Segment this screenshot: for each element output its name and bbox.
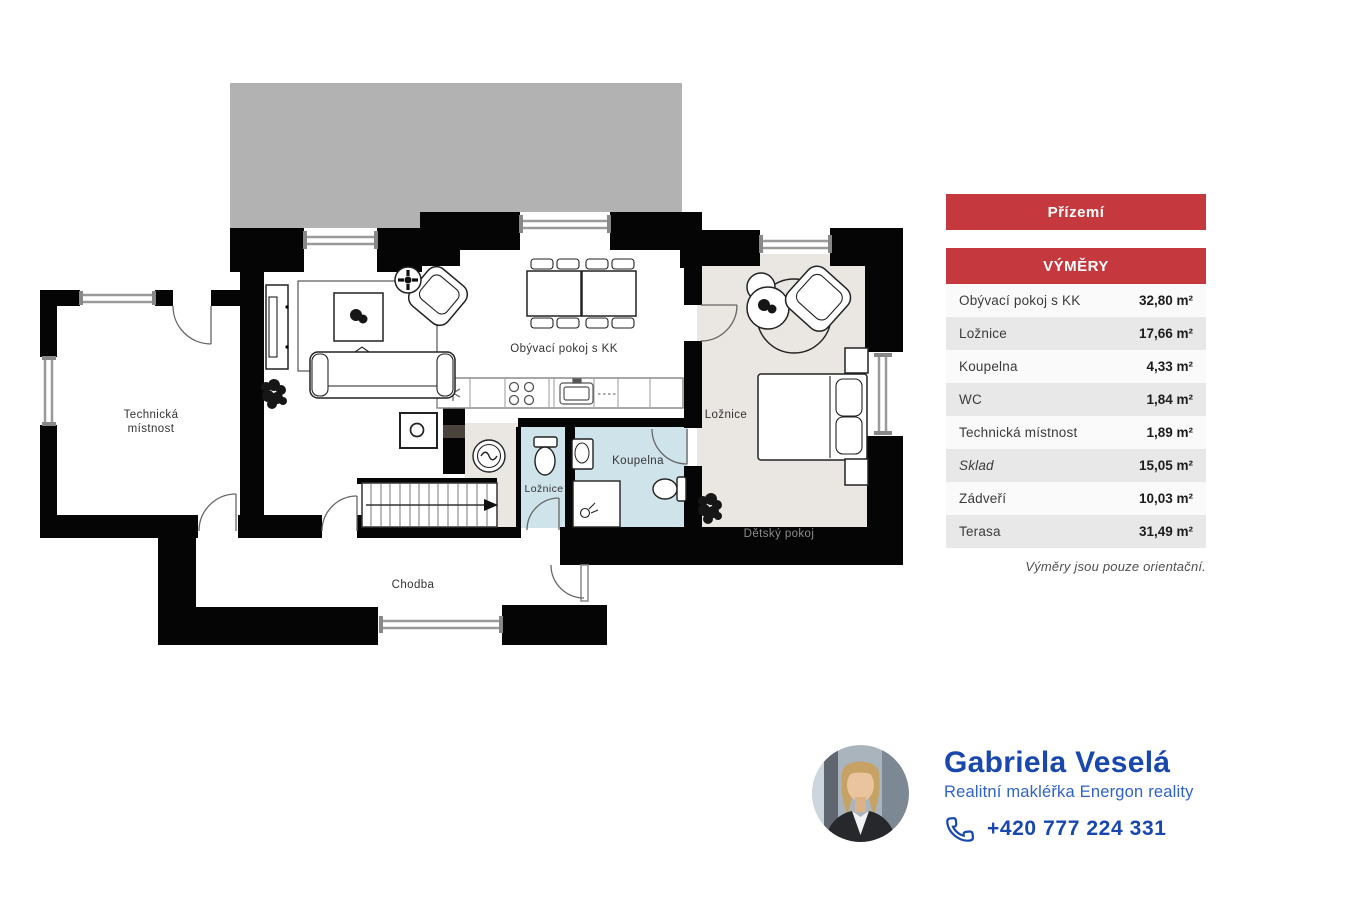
window-hallway-bottom (379, 614, 503, 638)
nightstand-bottom (845, 459, 868, 485)
room-label: Ložnice (959, 326, 1007, 341)
window-bedroom-top (759, 228, 832, 254)
window-technical-top (79, 290, 156, 306)
door-technical-top (173, 306, 211, 344)
area-row: Obývací pokoj s KK 32,80 m² (946, 284, 1206, 317)
agent-card: Gabriela Veselá Realitní makléřka Energo… (812, 745, 1194, 845)
room-area: 31,49 m² (1139, 524, 1193, 539)
bed (758, 374, 867, 460)
ceiling-fan-icon (395, 267, 421, 293)
window-living-right (519, 212, 611, 238)
bathroom-sink (572, 439, 593, 469)
room-label: Obývací pokoj s KK (959, 293, 1080, 308)
washing-machine (473, 440, 505, 472)
agent-info: Gabriela Veselá Realitní makléřka Energo… (944, 745, 1194, 845)
room-label: Terasa (959, 524, 1001, 539)
plant-living (261, 379, 287, 409)
nightstand-top (845, 348, 868, 373)
label-living: Obývací pokoj s KK (510, 343, 618, 355)
floor-title: Přízemí (1048, 204, 1105, 221)
room-area: 1,89 m² (1146, 425, 1193, 440)
sofa (310, 347, 455, 398)
room-label: Zádveří (959, 491, 1006, 506)
terrace-area (230, 83, 682, 228)
area-row: Koupelna 4,33 m² (946, 350, 1206, 383)
window-bedroom-right (867, 352, 903, 436)
shaft (443, 425, 465, 438)
window-technical-left (40, 356, 57, 426)
stairs (362, 483, 498, 527)
room-area: 17,66 m² (1139, 326, 1193, 341)
shower (573, 481, 620, 527)
agent-phone-row: +420 777 224 331 (944, 813, 1194, 845)
area-panel: Přízemí VÝMĚRY Obývací pokoj s KK 32,80 … (946, 194, 1206, 574)
label-bathroom: Koupelna (612, 455, 664, 467)
phone-icon (944, 813, 976, 845)
agent-photo (812, 745, 909, 842)
label-bedroom: Ložnice (705, 409, 747, 421)
toilet-wc (534, 437, 557, 475)
label-technical-1: Technická (124, 409, 179, 421)
room-label: Koupelna (959, 359, 1018, 374)
room-label: WC (959, 392, 982, 407)
area-row: Sklad 15,05 m² (946, 449, 1206, 482)
door-hallway-living (322, 496, 357, 531)
floor-title-header: Přízemí (946, 194, 1206, 230)
toilet-bathroom (653, 477, 686, 501)
area-row: WC 1,84 m² (946, 383, 1206, 416)
area-row: Ložnice 17,66 m² (946, 317, 1206, 350)
area-table: Obývací pokoj s KK 32,80 m² Ložnice 17,6… (946, 284, 1206, 548)
window-living-left (303, 228, 378, 254)
label-small-room: Ložnice (525, 483, 564, 495)
kitchen-sink (560, 379, 593, 404)
door-technical-bottom (199, 494, 236, 531)
area-row: Terasa 31,49 m² (946, 515, 1206, 548)
flyer-page: Obývací pokoj s KK Technická místnost Lo… (0, 0, 1352, 900)
label-kids-room: Dětský pokoj (744, 528, 815, 540)
agent-role: Realitní makléřka Energon reality (944, 783, 1194, 802)
table-title: VÝMĚRY (1043, 258, 1109, 275)
kitchen-counter (437, 378, 683, 408)
kitchen-island (400, 413, 437, 448)
room-area: 10,03 m² (1139, 491, 1193, 506)
area-row: Zádveří 10,03 m² (946, 482, 1206, 515)
agent-name: Gabriela Veselá (944, 747, 1194, 779)
area-row: Technická místnost 1,89 m² (946, 416, 1206, 449)
agent-avatar (812, 745, 909, 842)
entrance-door (551, 565, 588, 601)
tv-cabinet (266, 285, 289, 369)
room-label: Sklad (959, 458, 994, 473)
room-area: 1,84 m² (1146, 392, 1193, 407)
dining-set (527, 259, 636, 328)
label-hallway: Chodba (392, 579, 435, 591)
agent-phone-number: +420 777 224 331 (987, 817, 1167, 841)
label-technical-2: místnost (128, 423, 175, 435)
room-area: 4,33 m² (1146, 359, 1193, 374)
room-area: 15,05 m² (1139, 458, 1193, 473)
table-title-header: VÝMĚRY (946, 248, 1206, 284)
room-label: Technická místnost (959, 425, 1077, 440)
disclaimer-note: Výměry jsou pouze orientační. (946, 559, 1206, 574)
coffee-table (334, 293, 383, 341)
room-area: 32,80 m² (1139, 293, 1193, 308)
